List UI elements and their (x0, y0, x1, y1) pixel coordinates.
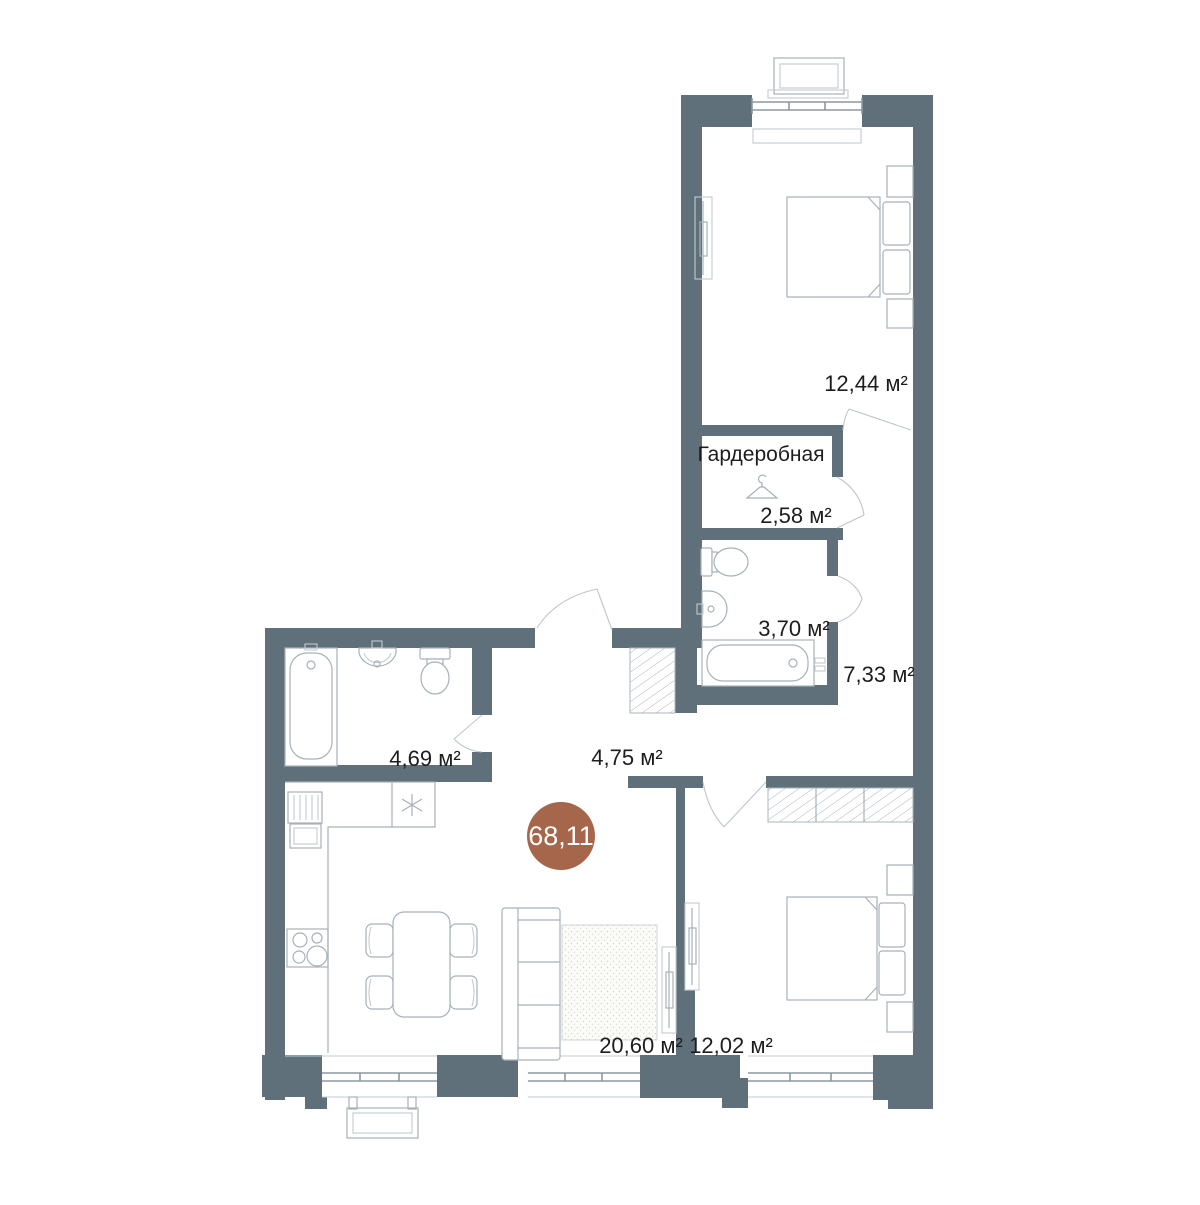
bathtub-icon (285, 644, 337, 766)
area-bedroom-bottom: 12,02 м² (689, 1033, 773, 1058)
door-bedroom-top (843, 409, 911, 430)
area-hall: 7,33 м² (843, 662, 914, 687)
toilet-icon (420, 648, 450, 694)
window-living (518, 1056, 640, 1097)
nightstand-icon (887, 166, 913, 328)
dining-table-icon (366, 912, 477, 1017)
total-area-badge: 68,11 (527, 802, 595, 870)
toilet-icon (701, 548, 748, 576)
floorplan-drawing: 12,44 м² Гардеробная 2,58 м² 3,70 м² 7,3… (0, 0, 1200, 1200)
entry-door (537, 589, 612, 630)
area-bathroom-small: 3,70 м² (758, 616, 829, 641)
nightstand-icon (887, 865, 913, 1032)
balcony-top-icon (768, 58, 848, 98)
fixtures (285, 166, 913, 1060)
area-kitchen-living: 20,60 м² (599, 1033, 683, 1058)
floorplan: 12,44 м² Гардеробная 2,58 м² 3,70 м² 7,3… (0, 0, 1200, 1200)
wardrobe-icon (768, 788, 913, 822)
balcony-bottom-icon (347, 1097, 418, 1138)
area-wardrobe: 2,58 м² (760, 503, 831, 528)
window-bedroom (748, 1056, 873, 1097)
area-bedroom-top: 12,44 м² (824, 371, 908, 396)
radiator-icon (662, 947, 676, 1033)
bed-icon (787, 897, 905, 1000)
area-hallway: 4,75 м² (591, 745, 662, 770)
door-wardrobe (837, 477, 864, 528)
closet-icon (630, 648, 675, 713)
sofa-icon (502, 908, 560, 1060)
bed-icon (787, 197, 910, 297)
rug (562, 925, 657, 1040)
radiator-icon (685, 903, 699, 990)
door-bathroom-small (838, 576, 862, 622)
stove-icon (287, 929, 328, 967)
window-top (752, 98, 862, 143)
bathtub-icon (702, 640, 825, 686)
sink-icon (697, 591, 727, 627)
hanger-icon (747, 475, 777, 498)
room-name-wardrobe: Гардеробная (697, 443, 824, 466)
total-area-value: 68,11 (528, 821, 594, 851)
vent-star-icon (402, 794, 422, 816)
door-bedroom-bottom (703, 782, 766, 827)
area-bathroom-large: 4,69 м² (389, 746, 460, 771)
